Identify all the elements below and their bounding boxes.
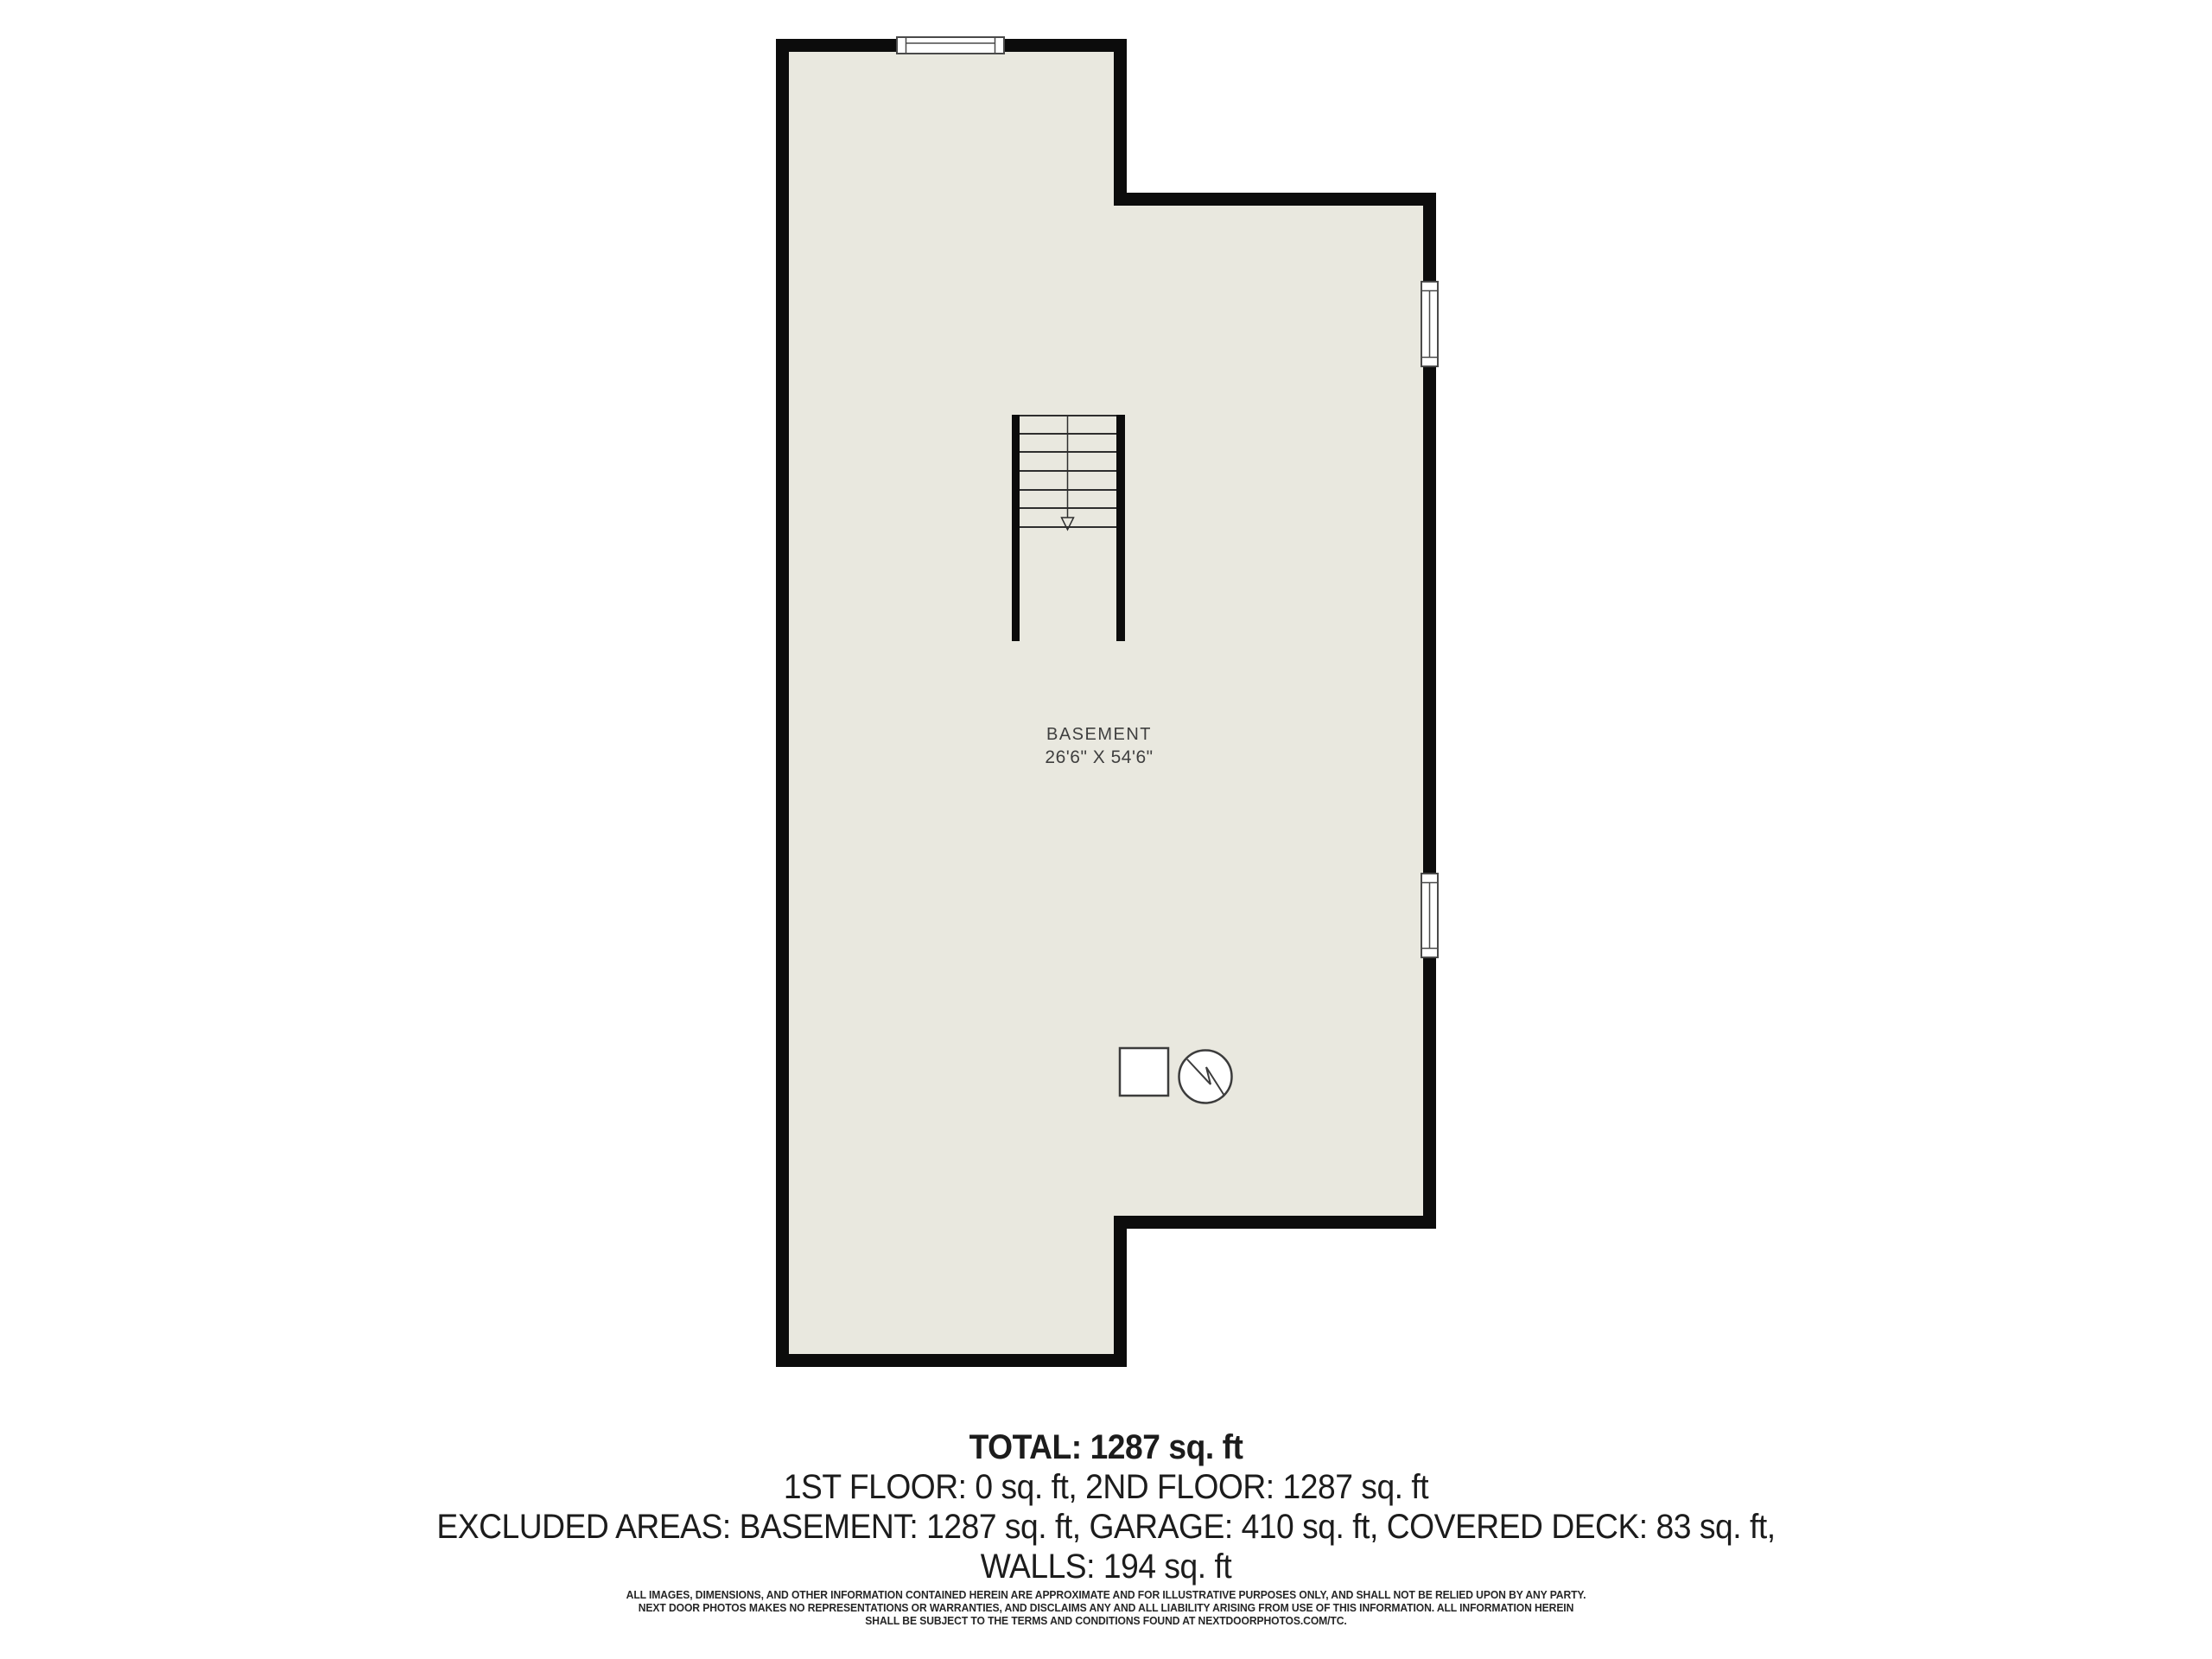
total-area: TOTAL: 1287 sq. ft bbox=[78, 1427, 2135, 1467]
disclaimer: ALL IMAGES, DIMENSIONS, AND OTHER INFORM… bbox=[0, 1589, 2212, 1628]
disclaimer-line-3: SHALL BE SUBJECT TO THE TERMS AND CONDIT… bbox=[33, 1615, 2178, 1628]
room-dimensions: 26'6" X 54'6" bbox=[1045, 747, 1153, 768]
stair-wall-left bbox=[1012, 415, 1020, 641]
excluded-areas: EXCLUDED AREAS: BASEMENT: 1287 sq. ft, G… bbox=[78, 1507, 2135, 1547]
floor-areas: 1ST FLOOR: 0 sq. ft, 2ND FLOOR: 1287 sq.… bbox=[78, 1467, 2135, 1507]
furnace-symbol bbox=[1120, 1048, 1168, 1096]
disclaimer-line-2: NEXT DOOR PHOTOS MAKES NO REPRESENTATION… bbox=[33, 1602, 2178, 1615]
floorplan-page: BASEMENT 26'6" X 54'6" TOTAL: 1287 sq. f… bbox=[0, 0, 2212, 1659]
room-label: BASEMENT 26'6" X 54'6" bbox=[1045, 724, 1153, 768]
floorplan-drawing bbox=[0, 0, 2212, 1659]
room-name: BASEMENT bbox=[1045, 724, 1153, 745]
basement-floor-area bbox=[789, 52, 1423, 1354]
area-summary: TOTAL: 1287 sq. ft 1ST FLOOR: 0 sq. ft, … bbox=[0, 1427, 2212, 1586]
window-right-upper bbox=[1421, 282, 1438, 366]
disclaimer-line-1: ALL IMAGES, DIMENSIONS, AND OTHER INFORM… bbox=[33, 1589, 2178, 1602]
water-heater-symbol bbox=[1179, 1051, 1232, 1103]
wall-area: WALLS: 194 sq. ft bbox=[78, 1547, 2135, 1586]
window-top bbox=[897, 37, 1004, 54]
stair-wall-right bbox=[1116, 415, 1125, 641]
window-right-lower bbox=[1421, 874, 1438, 957]
